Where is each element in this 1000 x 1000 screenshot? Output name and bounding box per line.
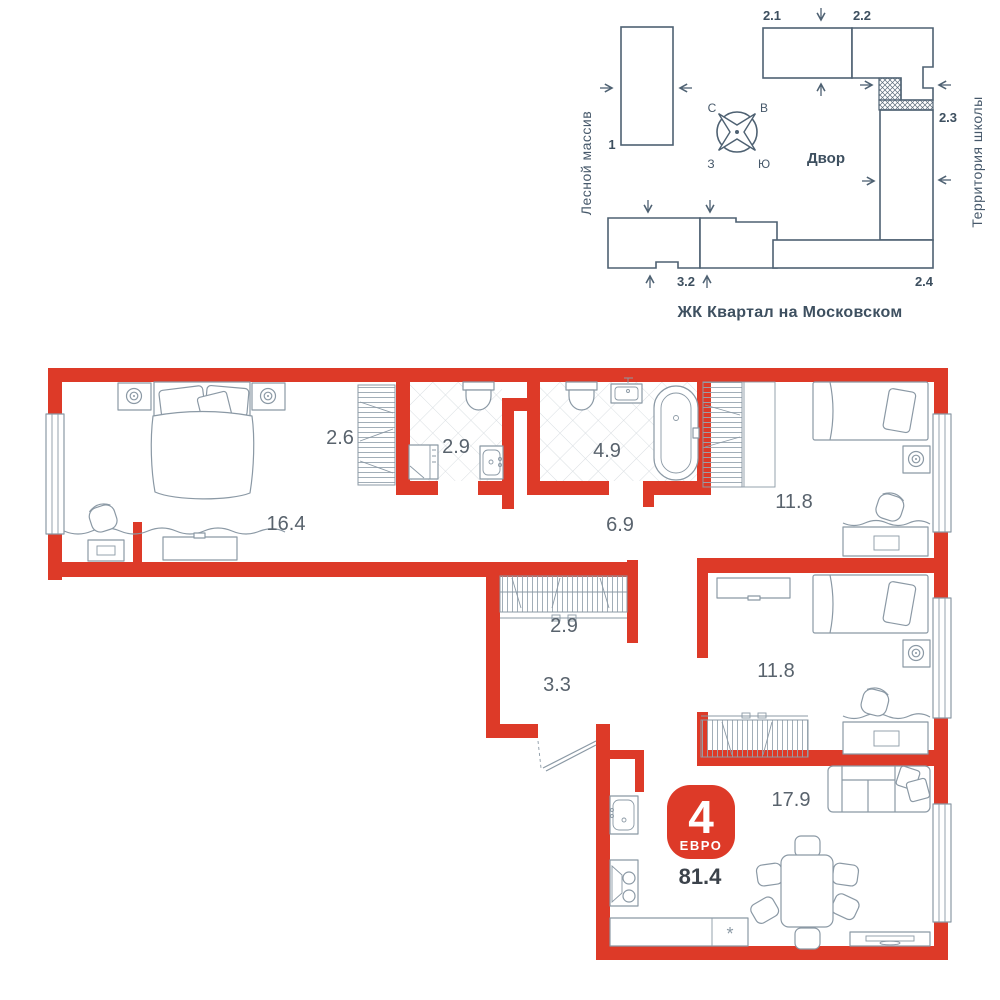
dresser-bedroom-2 bbox=[717, 578, 790, 600]
compass-south-label: Ю bbox=[758, 157, 770, 171]
site-label-building-2-4: 2.4 bbox=[915, 274, 934, 289]
bedroom-1 bbox=[703, 382, 930, 556]
window-master-bedroom bbox=[46, 414, 64, 534]
compass-west-label: З bbox=[707, 157, 714, 171]
site-label-building-2-3: 2.3 bbox=[939, 110, 957, 125]
compass-icon: С В З Ю bbox=[707, 101, 770, 171]
washing-machine-icon bbox=[409, 445, 438, 479]
area-label-bathroom-small: 2.9 bbox=[442, 436, 470, 458]
single-bed-2 bbox=[813, 575, 928, 633]
wardrobe-rack-bedroom-2 bbox=[701, 713, 808, 757]
site-label-building-2-2: 2.2 bbox=[853, 8, 871, 23]
window-living-room bbox=[933, 804, 951, 922]
kitchen-counter: * bbox=[610, 918, 748, 946]
desk-master bbox=[88, 540, 124, 561]
desk-chair-bedroom-2 bbox=[859, 685, 891, 718]
forest-area-label: Лесной массив bbox=[578, 111, 594, 215]
floor-plan: * 1 bbox=[46, 368, 951, 960]
apartment-badge: 4 ЕВРО 81.4 bbox=[667, 785, 735, 889]
kitchen-living: * bbox=[610, 765, 930, 949]
site-building-2-3 bbox=[880, 110, 933, 240]
desk-chair-bedroom-1 bbox=[874, 490, 907, 524]
wardrobe-niche bbox=[358, 385, 395, 485]
bathtub-icon bbox=[654, 386, 699, 480]
site-label-building-2-1: 2.1 bbox=[763, 8, 781, 23]
area-label-wardrobe-niche: 2.6 bbox=[326, 427, 354, 449]
area-label-hall-closet: 2.9 bbox=[550, 615, 578, 637]
curtain-line-bedroom-1 bbox=[843, 521, 930, 526]
double-bed bbox=[151, 382, 253, 499]
nightstand-lamp-right bbox=[252, 383, 285, 410]
floorplan-canvas: С В З Ю 1 2.1 2.2 2.3 3.2 2.4 Двор Лесно… bbox=[0, 0, 1000, 1000]
site-building-3-2-left bbox=[608, 218, 700, 268]
badge-total-area: 81.4 bbox=[679, 864, 723, 889]
site-building-3-2-right bbox=[700, 218, 777, 268]
desk-bedroom-1 bbox=[843, 527, 928, 556]
sofa bbox=[828, 765, 930, 812]
site-plan: С В З Ю 1 2.1 2.2 2.3 3.2 2.4 Двор Лесно… bbox=[578, 8, 985, 321]
compass-east-label: В bbox=[760, 101, 768, 115]
area-label-bathroom-large: 4.9 bbox=[593, 440, 621, 462]
desk-bedroom-2 bbox=[843, 722, 928, 754]
wardrobe-bedroom-1 bbox=[703, 382, 775, 487]
master-bedroom bbox=[64, 382, 285, 561]
dining-table bbox=[749, 836, 861, 949]
complex-name-caption: ЖК Квартал на Московском bbox=[677, 304, 903, 321]
site-building-1 bbox=[621, 27, 673, 145]
floorplan-page: С В З Ю 1 2.1 2.2 2.3 3.2 2.4 Двор Лесно… bbox=[0, 0, 1000, 1000]
compass-north-label: С bbox=[708, 101, 717, 115]
courtyard-label: Двор bbox=[807, 150, 845, 167]
site-building-2-1 bbox=[763, 28, 852, 78]
window-bedroom-1 bbox=[933, 414, 951, 532]
dishwasher-mark: * bbox=[726, 924, 733, 944]
nightstand-lamp-left bbox=[118, 383, 151, 410]
nightstand-lamp-bedroom-1 bbox=[903, 446, 930, 473]
school-area-label: Территория школы bbox=[969, 96, 985, 227]
curtain-line-bedroom-2 bbox=[843, 714, 930, 719]
bedroom-2 bbox=[701, 575, 930, 757]
site-building-2-4 bbox=[773, 240, 933, 268]
stove-icon bbox=[610, 860, 638, 906]
badge-layout-type: ЕВРО bbox=[680, 838, 723, 853]
site-label-building-1: 1 bbox=[608, 137, 615, 152]
area-label-bedroom-master: 16.4 bbox=[267, 513, 306, 535]
area-label-kitchen-living: 17.9 bbox=[772, 789, 811, 811]
area-label-bedroom-2: 11.8 bbox=[757, 660, 794, 682]
site-label-building-3-2: 3.2 bbox=[677, 274, 695, 289]
sink-small-icon bbox=[480, 446, 503, 479]
entrance-door bbox=[538, 741, 596, 771]
tv-dresser-master bbox=[163, 533, 237, 560]
single-bed-1 bbox=[813, 382, 928, 440]
badge-rooms-count: 4 bbox=[688, 791, 714, 843]
area-label-hall: 3.3 bbox=[543, 674, 571, 696]
window-bedroom-2 bbox=[933, 598, 951, 718]
area-label-bedroom-1: 11.8 bbox=[775, 491, 812, 513]
tv-stand bbox=[850, 932, 930, 946]
area-label-corridor: 6.9 bbox=[606, 514, 634, 536]
nightstand-lamp-bedroom-2 bbox=[903, 640, 930, 667]
kitchen-sink-icon bbox=[610, 796, 638, 834]
